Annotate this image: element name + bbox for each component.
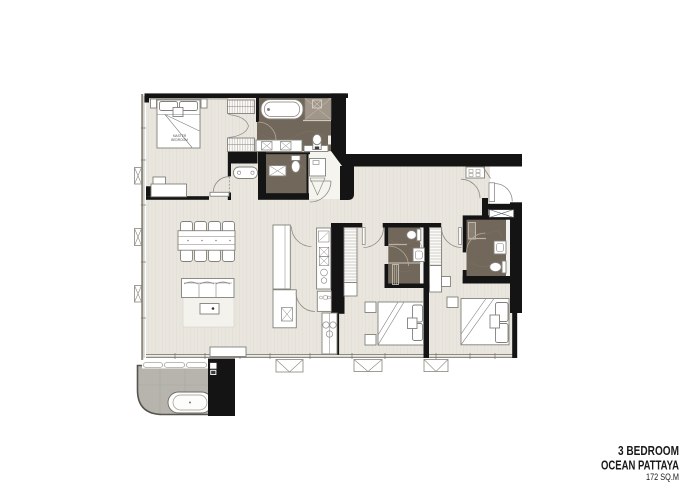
svg-text:3 BEDROOM: 3 BEDROOM	[618, 443, 679, 458]
svg-text:OCEAN PATTAYA: OCEAN PATTAYA	[601, 458, 679, 473]
svg-text:172 SQ.M: 172 SQ.M	[646, 472, 679, 482]
svg-text:BEDROOM: BEDROOM	[171, 138, 188, 142]
